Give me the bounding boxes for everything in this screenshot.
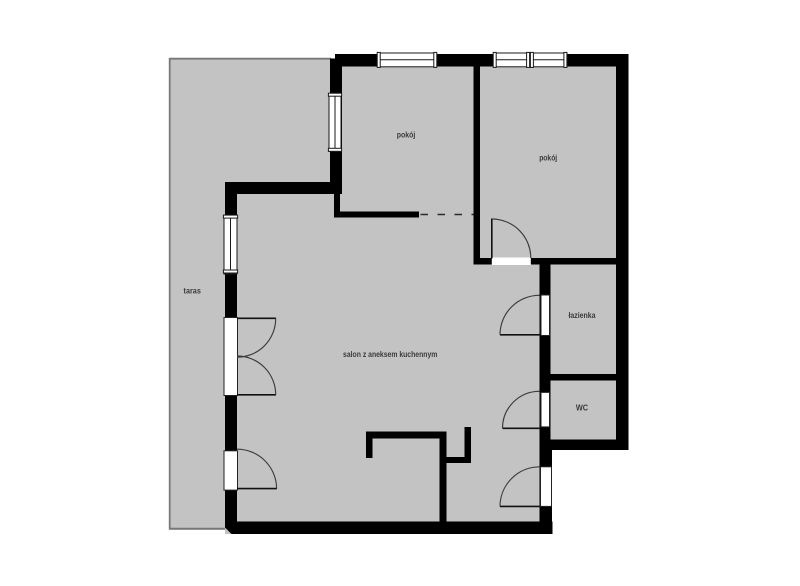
svg-text:WC: WC	[576, 403, 588, 413]
svg-text:salon z aneksem kuchennym: salon z aneksem kuchennym	[343, 349, 438, 359]
svg-text:taras: taras	[184, 286, 202, 296]
svg-text:pokój: pokój	[539, 153, 557, 163]
svg-text:łazienka: łazienka	[569, 310, 596, 320]
svg-text:pokój: pokój	[397, 130, 416, 140]
